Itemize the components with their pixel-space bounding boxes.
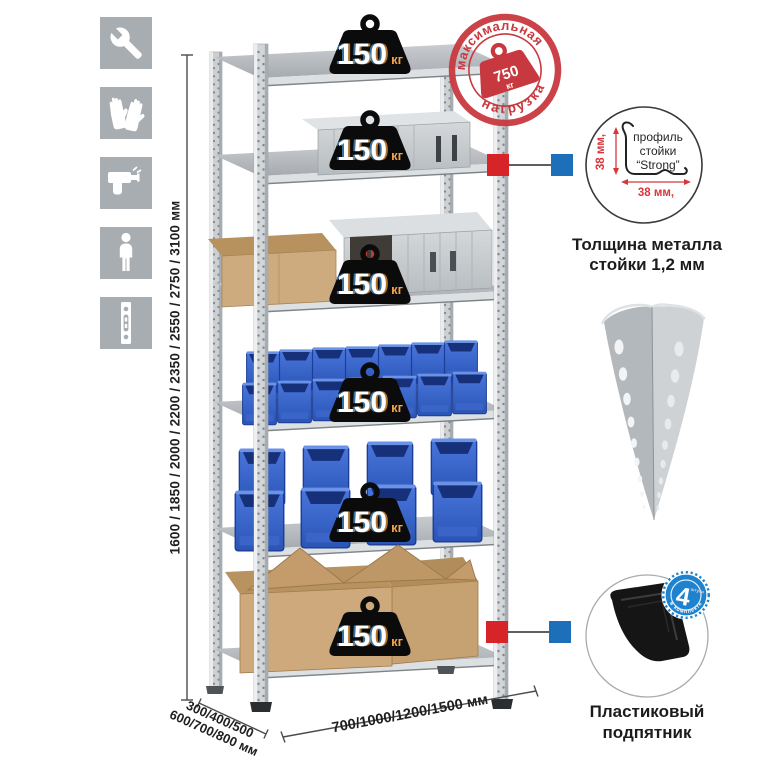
profile-label-line2: стойки: [640, 144, 677, 158]
load-value: 150: [337, 133, 387, 169]
icon-tile-wrench: [100, 17, 152, 69]
rack-foot: [437, 666, 455, 674]
product-infographic: 750 кг максимальная нагрузка: [0, 0, 765, 765]
gloves-icon: [100, 87, 152, 139]
rack-foot: [250, 702, 272, 712]
load-value: 150: [337, 619, 387, 655]
profile-caption: Толщина металла стойки 1,2 мм: [557, 235, 737, 275]
weight-badge-shelf-6: 150кг: [322, 596, 418, 662]
weight-badge-shelf-5: 150кг: [322, 482, 418, 548]
blue-marker-square: [551, 154, 573, 176]
storage-bin: [278, 381, 312, 423]
foot-caption: Пластиковый подпятник: [557, 701, 737, 743]
load-value: 150: [337, 505, 387, 541]
height-dimension-label: 1600 / 1850 / 2000 / 2200 / 2350 / 2550 …: [168, 78, 185, 678]
foot-caption-line2: подпятник: [557, 722, 737, 743]
person-icon: [100, 227, 152, 279]
profile-detail-circle: 38 мм, 38 мм, профиль стойки “Strong”: [586, 107, 702, 223]
rack-post-icon: [100, 297, 152, 349]
weight-badge-shelf-2: 150кг: [322, 110, 418, 176]
red-marker-square: [486, 621, 508, 643]
callout-connector-top: [487, 154, 573, 176]
profile-label-line1: профиль: [633, 130, 683, 144]
icon-tile-drill: [100, 157, 152, 209]
load-unit: кг: [391, 148, 403, 163]
profile-dim-vertical-label: 38 мм,: [595, 134, 607, 170]
profile-caption-line2: стойки 1,2 мм: [557, 255, 737, 275]
foot-caption-line1: Пластиковый: [557, 701, 737, 722]
callout-connector-bottom: [486, 621, 571, 643]
rack-foot: [206, 686, 224, 694]
weight-badge-shelf-4: 150кг: [322, 362, 418, 428]
blue-marker-square: [549, 621, 571, 643]
storage-bin: [433, 482, 481, 542]
icon-tile-person: [100, 227, 152, 279]
load-value: 150: [337, 267, 387, 303]
load-unit: кг: [391, 520, 403, 535]
cardboard-box-small: [208, 233, 336, 307]
load-unit: кг: [391, 634, 403, 649]
weight-badge-shelf-1: 150кг: [322, 14, 418, 80]
red-marker-square: [487, 154, 509, 176]
load-value: 150: [337, 37, 387, 73]
profile-caption-line1: Толщина металла: [557, 235, 737, 255]
profile-dim-horizontal-label: 38 мм,: [638, 187, 674, 199]
load-unit: кг: [391, 282, 403, 297]
storage-bin: [453, 372, 487, 414]
count-badge: 4 штуки в комплекте: [662, 571, 711, 620]
load-value: 150: [337, 385, 387, 421]
wrench-icon: [100, 17, 152, 69]
storage-bin: [418, 374, 452, 416]
icon-tile-gloves: [100, 87, 152, 139]
load-unit: кг: [391, 400, 403, 415]
load-unit: кг: [391, 52, 403, 67]
metal-angle-post: [602, 305, 705, 520]
foot-detail-circle: 4 штуки в комплекте: [586, 571, 711, 698]
weight-badge-shelf-3: 150кг: [322, 244, 418, 310]
drill-icon: [100, 157, 152, 209]
profile-label-line3: “Strong”: [636, 158, 679, 172]
icon-tile-rack-post: [100, 297, 152, 349]
